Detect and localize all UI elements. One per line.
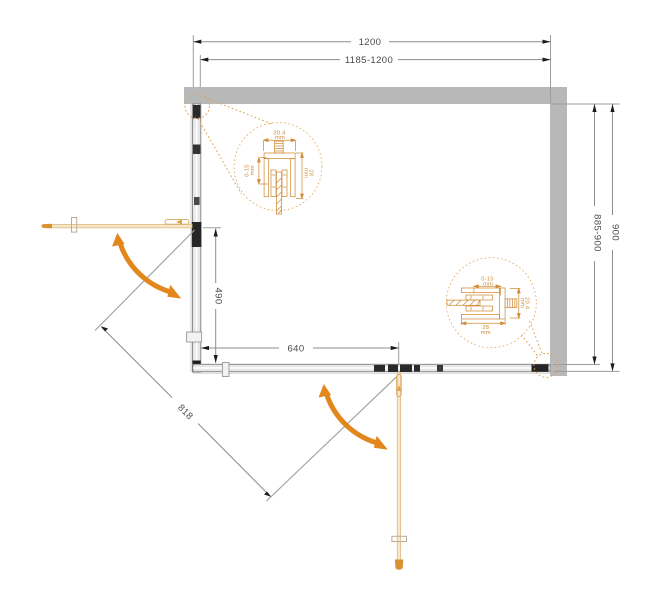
svg-text:mm: mm bbox=[481, 330, 491, 336]
svg-text:1200: 1200 bbox=[359, 37, 382, 48]
svg-text:1185-1200: 1185-1200 bbox=[345, 55, 393, 66]
svg-text:818: 818 bbox=[175, 402, 195, 422]
svg-text:885-900: 885-900 bbox=[592, 214, 603, 252]
svg-text:mm: mm bbox=[250, 165, 256, 175]
svg-text:mm: mm bbox=[302, 168, 308, 178]
svg-text:640: 640 bbox=[287, 343, 304, 354]
svg-text:490: 490 bbox=[213, 287, 224, 304]
svg-text:mm: mm bbox=[483, 282, 493, 288]
svg-text:mm: mm bbox=[275, 135, 285, 141]
svg-text:900: 900 bbox=[610, 224, 621, 241]
svg-text:mm: mm bbox=[519, 298, 525, 308]
